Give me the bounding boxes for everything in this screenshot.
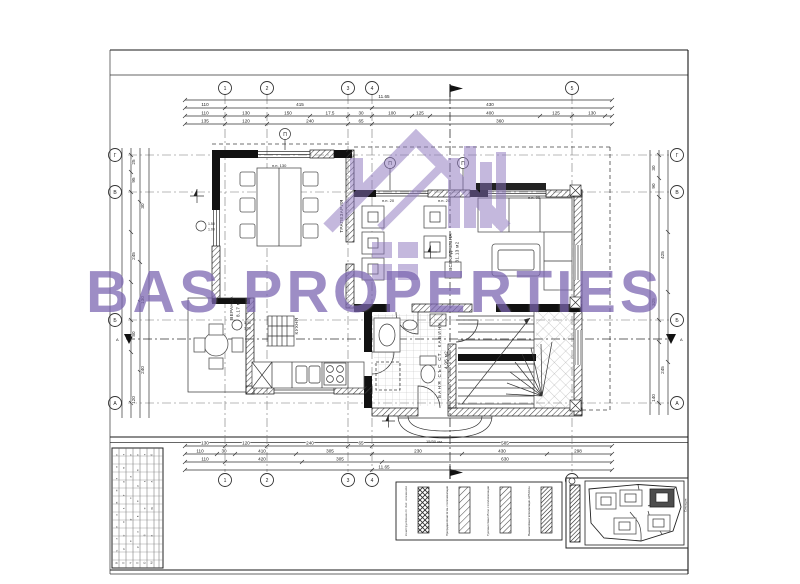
stairs	[458, 312, 574, 408]
dim-label: 430	[498, 449, 506, 454]
dim-label: 130	[242, 111, 250, 116]
dim-label: 30	[140, 203, 145, 209]
dim-label: 120	[242, 441, 250, 446]
legend-swatch-partition	[459, 487, 470, 533]
window-size-note: 1.00	[244, 327, 251, 331]
dining-room	[240, 168, 318, 246]
section-label-left: А	[116, 337, 119, 342]
entry-steps	[398, 416, 492, 438]
dim-label: 298	[574, 449, 582, 454]
parapet-note: п.п. 130	[272, 163, 287, 168]
grid-bubble-label: 2	[266, 478, 269, 484]
legend-item-label: Конструктивни ст. бет. елементи	[404, 486, 408, 536]
room-label-bath: БАНЯ СЪС СТ. КАБИНА	[437, 321, 442, 398]
grid-bubble-label: Б	[675, 318, 679, 324]
dim-label: 240	[306, 119, 314, 124]
dim-label: 585	[501, 441, 509, 446]
grid-bubble-label: Г	[114, 153, 117, 159]
grid-bubble-label: А	[113, 401, 117, 407]
dimension-chain-bottom: 130 120 240 65 585 110 30 410 305 230 43…	[183, 441, 614, 473]
dim-label: 95	[131, 177, 136, 183]
legend: Конструктивни ст. бет. елементи Преградн…	[396, 482, 562, 540]
legend-item-label: Преградни стени 12 см. с топлоизолация	[445, 486, 449, 536]
dim-label: 240	[306, 441, 314, 446]
entry-step-note: 15/30 см.	[426, 439, 443, 444]
drawing-sheet: А А 1 2 3 4 5 1 2 3 4 5 Г	[0, 0, 800, 584]
title-block: Възложител Проектант Чертал Проверил Обе…	[112, 448, 163, 568]
dim-label: 100	[388, 111, 396, 116]
dim-label: 415	[296, 102, 304, 107]
dim-label: 230	[414, 449, 422, 454]
site-plan-label: Ситуация	[684, 498, 688, 512]
dim-label: 305	[326, 449, 334, 454]
grid-bubble-label: 2	[266, 86, 269, 92]
legend-item-label: Външни стени с топлоизолация - EPS 10 см…	[527, 486, 531, 536]
dim-label: 80	[131, 331, 136, 337]
dim-label: 90	[651, 183, 656, 189]
grid-bubble-label: 3	[347, 478, 350, 484]
column-marker-label: П	[283, 132, 287, 138]
dim-label: 17.5	[326, 111, 335, 116]
section-label-right: А	[680, 337, 683, 342]
dim-label: 305	[336, 457, 344, 462]
dim-label: 140	[651, 394, 656, 402]
window-size-note: 1.50	[208, 222, 215, 226]
site-plan: Ситуация	[566, 478, 688, 548]
dim-label: 30	[651, 165, 656, 171]
dim-label: 410	[258, 449, 266, 454]
dim-label: 125	[416, 111, 424, 116]
legend-swatch-external	[541, 487, 552, 533]
dim-label: 425	[660, 251, 665, 259]
dim-label: 30	[358, 111, 364, 116]
grid-bubble-label: 3	[347, 86, 350, 92]
room-area-bath: 4.95 м2	[444, 351, 449, 369]
grid-bubble-label: 5	[571, 86, 574, 92]
dim-label: 150	[284, 111, 292, 116]
dim-label: 120	[242, 119, 250, 124]
grid-bubble-label: 1	[224, 478, 227, 484]
dim-label: 240	[140, 366, 145, 374]
bathroom	[374, 314, 446, 406]
grid-bubble-label: В	[675, 190, 679, 196]
dim-label: 125	[552, 111, 560, 116]
kitchen	[252, 316, 364, 388]
dim-label: 30	[221, 449, 227, 454]
grid-bubble-label: 4	[371, 86, 374, 92]
window-size-note: 1.00	[208, 228, 215, 232]
dim-label: 11.65	[378, 94, 390, 99]
site-hatch-bar	[570, 485, 580, 542]
dim-label: 135	[201, 119, 209, 124]
dim-label: 11.65	[378, 465, 390, 470]
legend-swatch-concrete	[418, 487, 429, 533]
dim-label: 120	[131, 396, 136, 404]
dim-label: 420	[258, 457, 266, 462]
brand-watermark-text: BAS PROPERTIES	[86, 263, 663, 322]
dim-label: 25	[131, 159, 136, 165]
grid-bubble-label: 4	[371, 478, 374, 484]
dim-label: 65	[358, 441, 364, 446]
dim-label: 110	[201, 111, 209, 116]
grid-bubble-label: В	[113, 190, 117, 196]
dim-label: 130	[201, 441, 209, 446]
grid-bubble-label: Г	[676, 153, 679, 159]
legend-item-label: Тухлени стени 25 см. с топлоизолация	[486, 486, 490, 536]
dim-label: 110	[201, 457, 209, 462]
grid-bubble-label: А	[675, 401, 679, 407]
dim-label: 130	[588, 111, 596, 116]
dim-label: 630	[501, 457, 509, 462]
dim-label: 245	[660, 366, 665, 374]
dim-label: 430	[486, 102, 494, 107]
dim-label: 110	[201, 102, 209, 107]
legend-swatch-brick	[500, 487, 511, 533]
dim-label: 400	[486, 111, 494, 116]
grid-bubble-label: 1	[224, 86, 227, 92]
dim-label: 110	[196, 449, 204, 454]
